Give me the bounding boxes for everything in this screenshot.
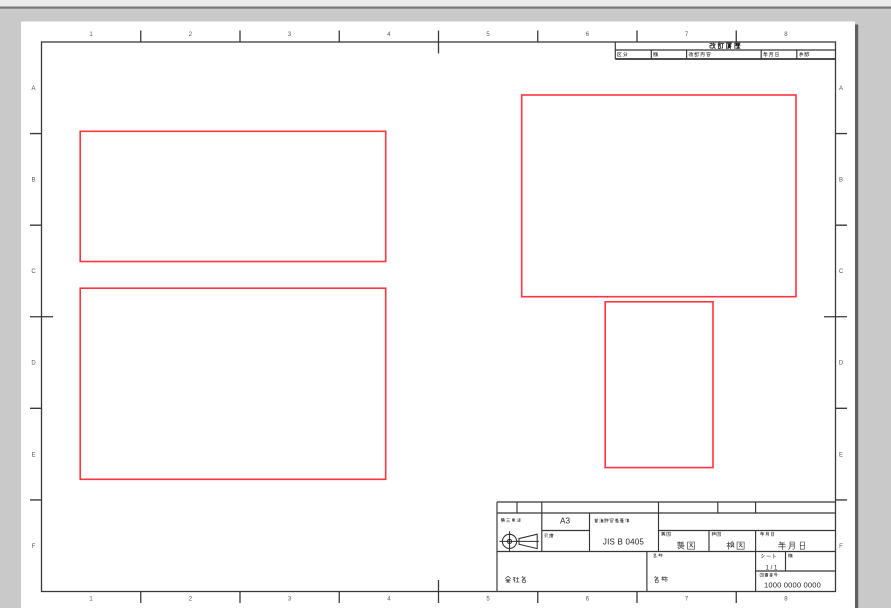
svg-text:1 / 1: 1 / 1 <box>766 565 778 571</box>
svg-text:B: B <box>31 178 35 184</box>
svg-text:C: C <box>839 269 844 275</box>
svg-text:E: E <box>839 452 843 458</box>
svg-text:1000 0000 0000: 1000 0000 0000 <box>764 580 821 589</box>
svg-text:B: B <box>839 178 843 184</box>
svg-text:F: F <box>839 544 843 550</box>
svg-text:C: C <box>31 269 36 275</box>
svg-text:E: E <box>31 452 35 458</box>
svg-text:D: D <box>839 361 844 367</box>
svg-text:A: A <box>31 86 35 92</box>
svg-text:D: D <box>31 361 36 367</box>
svg-text:F: F <box>32 544 36 550</box>
svg-text:A3: A3 <box>560 517 570 526</box>
svg-text:JIS B 0405: JIS B 0405 <box>603 537 644 546</box>
svg-text:A: A <box>839 86 843 92</box>
